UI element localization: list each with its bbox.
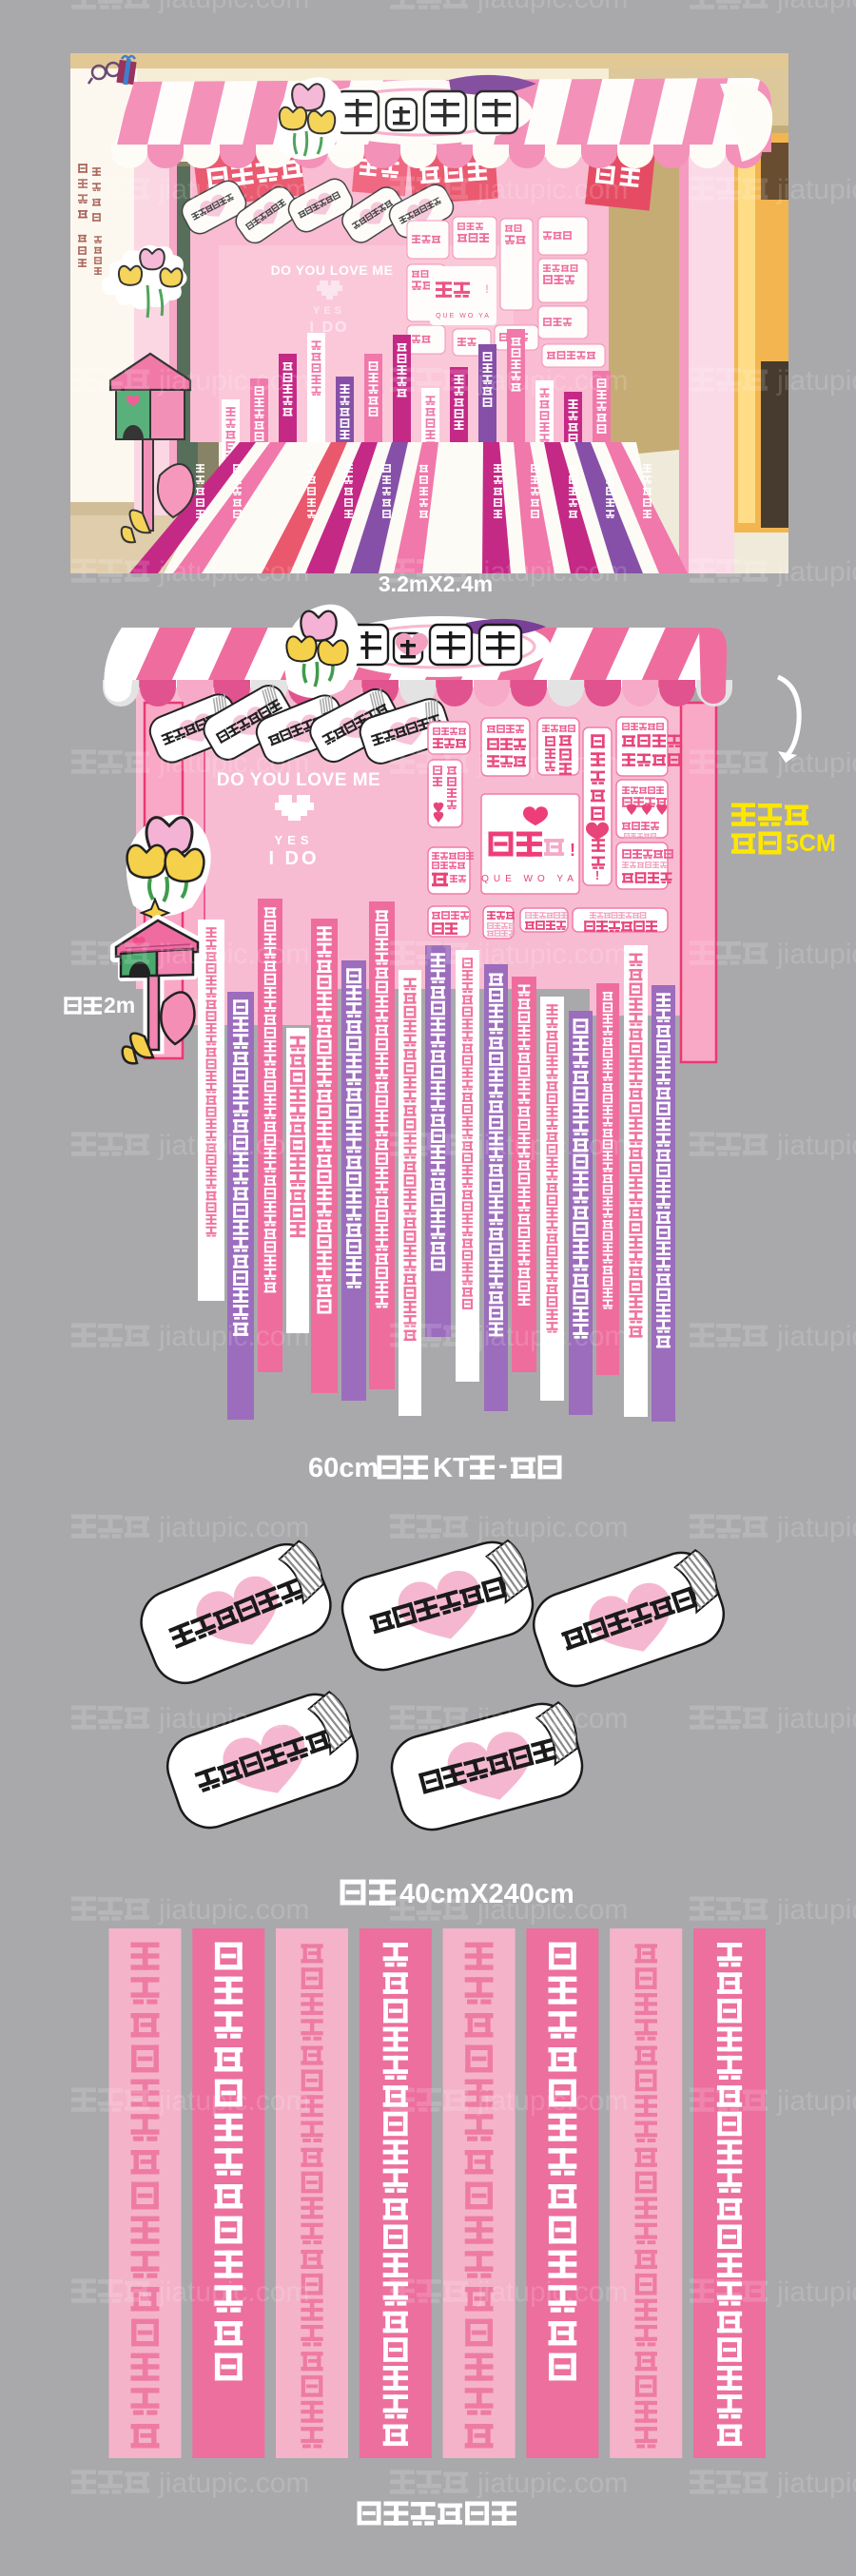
svg-text:jiatupic.com: jiatupic.com [158, 556, 309, 588]
svg-text:jiatupic.com: jiatupic.com [158, 1512, 309, 1543]
svg-text:YES: YES [274, 833, 313, 847]
svg-text:jiatupic.com: jiatupic.com [158, 2468, 309, 2499]
svg-text:jiatupic.com: jiatupic.com [158, 0, 309, 14]
svg-text:jiatupic.com: jiatupic.com [776, 365, 856, 397]
svg-text:jiatupic.com: jiatupic.com [477, 1130, 628, 1161]
svg-text:jiatupic.com: jiatupic.com [477, 556, 628, 588]
svg-text:jiatupic.com: jiatupic.com [477, 1321, 628, 1352]
svg-text:jiatupic.com: jiatupic.com [158, 1703, 309, 1734]
svg-text:jiatupic.com: jiatupic.com [158, 1130, 309, 1161]
svg-text:QUE WO YA: QUE WO YA [481, 874, 578, 884]
svg-text:jiatupic.com: jiatupic.com [776, 1321, 856, 1352]
svg-text:jiatupic.com: jiatupic.com [477, 747, 628, 779]
svg-text:jiatupic.com: jiatupic.com [158, 2276, 309, 2308]
svg-text:-: - [498, 1450, 508, 1481]
svg-text:jiatupic.com: jiatupic.com [776, 1130, 856, 1161]
svg-text:jiatupic.com: jiatupic.com [477, 1512, 628, 1543]
svg-text:I DO: I DO [268, 848, 319, 869]
svg-text:jiatupic.com: jiatupic.com [477, 2085, 628, 2117]
svg-text:jiatupic.com: jiatupic.com [477, 2276, 628, 2308]
svg-text:2m: 2m [104, 993, 135, 1017]
svg-text:jiatupic.com: jiatupic.com [158, 939, 309, 970]
svg-text:jiatupic.com: jiatupic.com [776, 2468, 856, 2499]
svg-text:jiatupic.com: jiatupic.com [158, 747, 309, 779]
svg-text:jiatupic.com: jiatupic.com [776, 1703, 856, 1734]
svg-text:5CM: 5CM [786, 830, 836, 857]
svg-text:jiatupic.com: jiatupic.com [477, 0, 628, 14]
svg-text:jiatupic.com: jiatupic.com [477, 1894, 628, 1926]
svg-text:jiatupic.com: jiatupic.com [776, 1894, 856, 1926]
svg-text:jiatupic.com: jiatupic.com [158, 365, 309, 397]
svg-text:KT: KT [433, 1453, 470, 1483]
svg-text:!: ! [595, 868, 599, 882]
svg-text:jiatupic.com: jiatupic.com [158, 1894, 309, 1926]
svg-text:jiatupic.com: jiatupic.com [776, 2276, 856, 2308]
svg-text:jiatupic.com: jiatupic.com [776, 2085, 856, 2117]
svg-text:60cm: 60cm [308, 1453, 379, 1483]
svg-text:jiatupic.com: jiatupic.com [776, 1512, 856, 1543]
svg-text:jiatupic.com: jiatupic.com [477, 174, 628, 205]
svg-text:!: ! [570, 841, 575, 860]
svg-text:jiatupic.com: jiatupic.com [776, 556, 856, 588]
svg-text:jiatupic.com: jiatupic.com [477, 2468, 628, 2499]
svg-text:jiatupic.com: jiatupic.com [477, 939, 628, 970]
svg-text:jiatupic.com: jiatupic.com [776, 939, 856, 970]
svg-text:jiatupic.com: jiatupic.com [477, 1703, 628, 1734]
svg-text:jiatupic.com: jiatupic.com [776, 0, 856, 14]
svg-text:jiatupic.com: jiatupic.com [776, 174, 856, 205]
svg-text:jiatupic.com: jiatupic.com [477, 365, 628, 397]
svg-text:jiatupic.com: jiatupic.com [158, 2085, 309, 2117]
svg-text:jiatupic.com: jiatupic.com [158, 174, 309, 205]
svg-text:jiatupic.com: jiatupic.com [158, 1321, 309, 1352]
svg-text:jiatupic.com: jiatupic.com [776, 747, 856, 779]
